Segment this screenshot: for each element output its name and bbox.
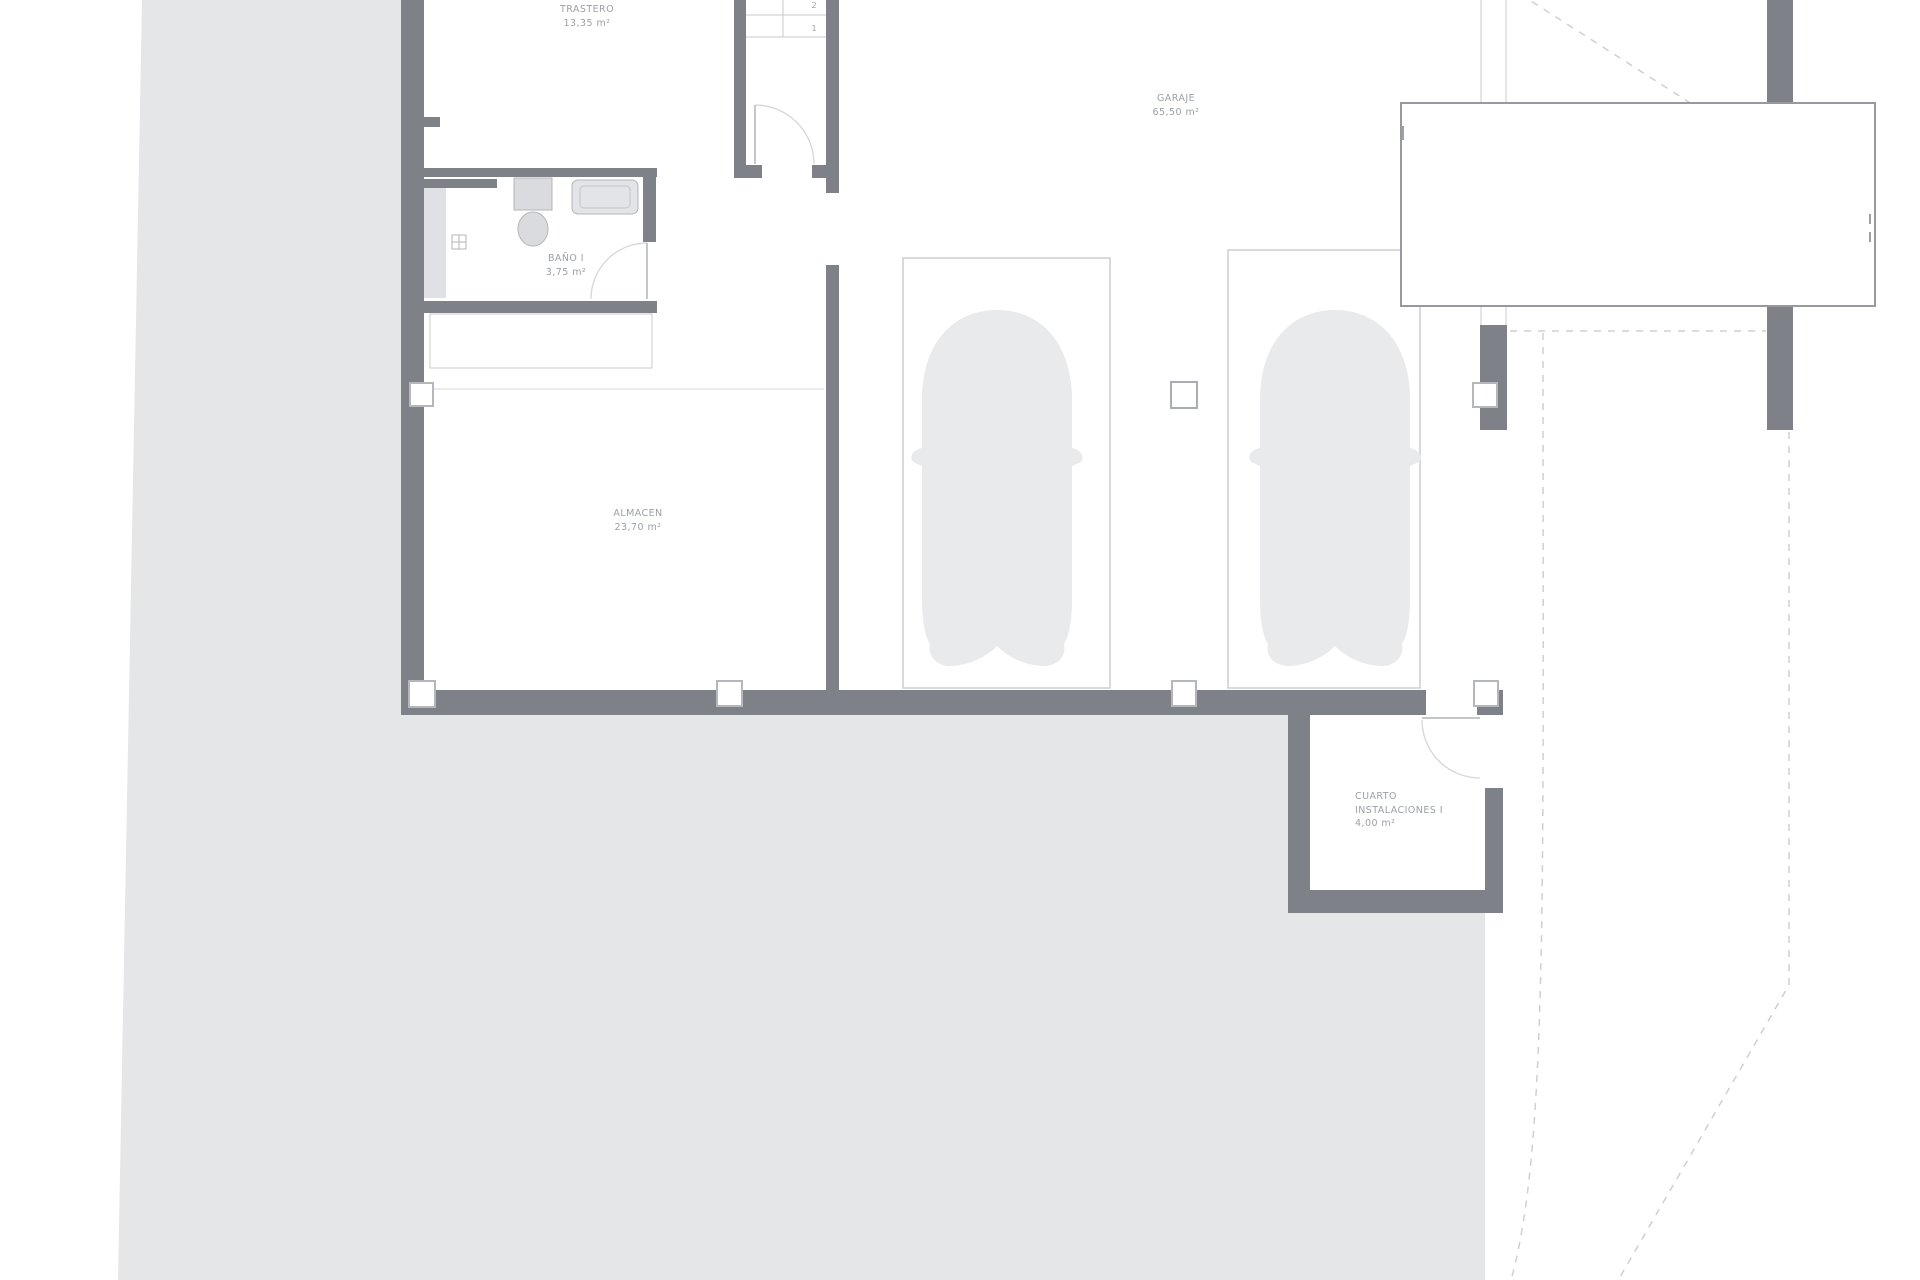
column-bottom-4: [1473, 680, 1499, 707]
title-box: [1400, 102, 1876, 307]
column-garage-free: [1170, 381, 1198, 409]
title-box-tick: [1869, 232, 1871, 242]
title-box-tick: [1869, 214, 1871, 224]
ramp-diagonal-dashed: [1520, 0, 1695, 106]
title-box-tick: [1402, 126, 1404, 140]
wall-trastero-jamb: [424, 117, 440, 127]
sink: [572, 180, 638, 214]
room-label-almacen: ALMACEN 23,70 m²: [578, 507, 698, 534]
stair-step-number: 2: [806, 1, 822, 10]
wall-cuarto-left: [1288, 713, 1310, 913]
column-left-mid: [409, 382, 434, 407]
wall-bathroom-bottom: [420, 301, 657, 313]
wall-stair-right: [826, 0, 839, 193]
closet-outline: [430, 314, 652, 368]
room-name: CUARTO: [1355, 790, 1515, 804]
room-area: 3,75 m²: [506, 266, 626, 280]
driveway-right-dashed: [1616, 432, 1789, 1280]
wall-garage-door-stub: [1480, 325, 1507, 430]
toilet: [514, 178, 552, 246]
stair-step-number: 1: [806, 24, 822, 33]
room-label-trastero: TRASTERO 13,35 m²: [527, 3, 647, 30]
room-area: 13,35 m²: [527, 17, 647, 31]
wall-bathroom-right: [643, 168, 656, 242]
car-2: [1249, 310, 1420, 666]
wall-left-exterior: [401, 0, 424, 715]
column-bottom-3: [1171, 680, 1197, 707]
room-name: INSTALACIONES I: [1355, 804, 1515, 818]
shower-floor: [424, 188, 466, 298]
wall-shower-partition: [424, 179, 497, 188]
room-name: GARAJE: [1116, 92, 1236, 106]
wall-almacen-garage-divider: [826, 265, 839, 715]
wall-cuarto-bottom: [1288, 890, 1485, 913]
room-area: 4,00 m²: [1355, 817, 1515, 831]
room-label-bano: BAÑO I 3,75 m²: [506, 252, 626, 279]
column-bottom-2: [716, 680, 743, 707]
column-bottom-1: [408, 680, 436, 708]
wall-bottom-main: [401, 690, 1426, 715]
wall-bathroom-top: [420, 168, 657, 177]
car-1: [911, 310, 1082, 666]
room-name: ALMACEN: [578, 507, 698, 521]
room-area: 65,50 m²: [1116, 106, 1236, 120]
room-label-garaje: GARAJE 65,50 m²: [1116, 92, 1236, 119]
room-name: TRASTERO: [527, 3, 647, 17]
wall-stair-left-foot: [746, 165, 762, 178]
room-name: BAÑO I: [506, 252, 626, 266]
room-label-cuarto: CUARTO INSTALACIONES I 4,00 m²: [1355, 790, 1515, 831]
column-stub-mid: [1472, 382, 1498, 408]
floor-plan-page: TRASTERO 13,35 m² GARAJE 65,50 m² BAÑO I…: [0, 0, 1920, 1280]
cuarto-door: [1422, 718, 1480, 778]
wall-stair-right-foot: [812, 165, 826, 178]
wall-stair-left: [734, 0, 746, 178]
corridor-door: [755, 105, 814, 164]
room-area: 23,70 m²: [578, 521, 698, 535]
